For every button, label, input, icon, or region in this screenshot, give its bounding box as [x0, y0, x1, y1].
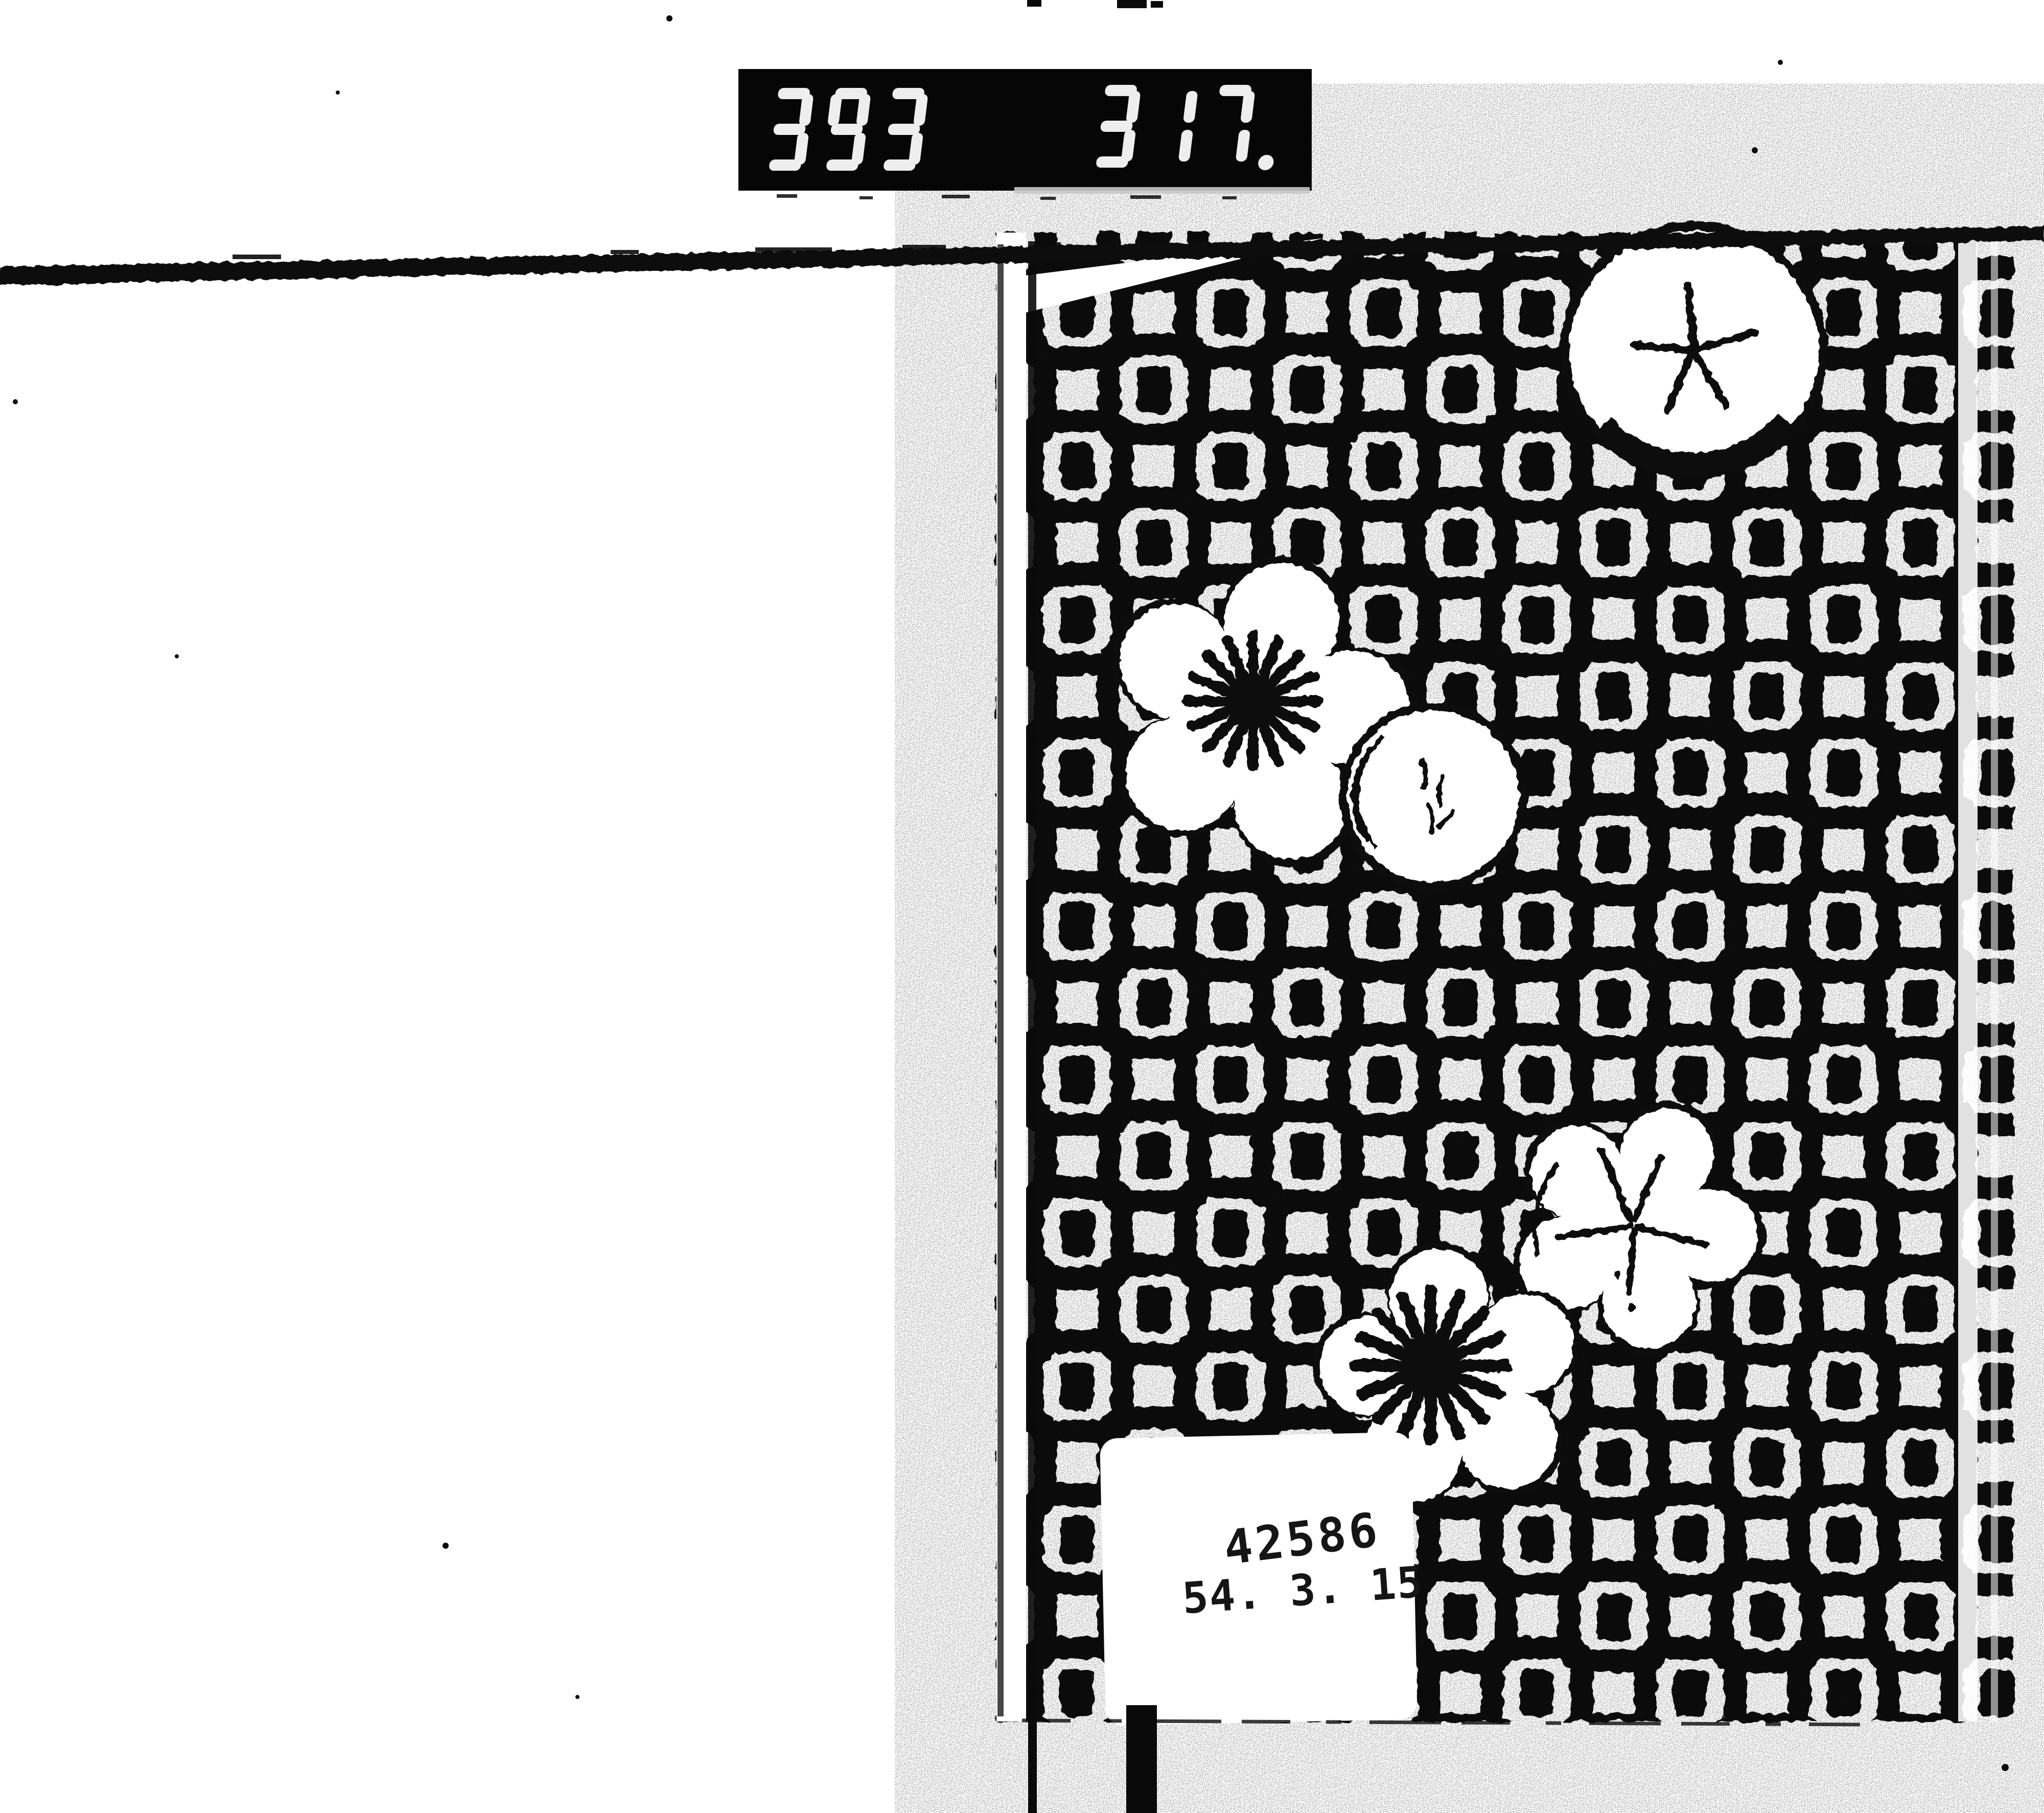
thread-line	[1028, 241, 1036, 1717]
swatch-left-edge-line	[997, 244, 1004, 1716]
crease-streak	[1991, 233, 1998, 1722]
crease-streak	[1958, 233, 1978, 1722]
ray-center-icon	[1188, 636, 1318, 767]
plum-blossom-star-top-icon	[1560, 221, 1828, 479]
hanging-tape-thin	[1028, 1717, 1037, 1813]
film-counter-plate	[738, 69, 1312, 200]
scanned-textile-card: 42586 54. 3. 15	[0, 0, 2044, 1813]
ray-center-icon	[1356, 1291, 1506, 1441]
fabric-swatch	[996, 221, 2013, 1813]
plate-bottom-glare	[1014, 187, 1310, 194]
round-bud-icon	[1339, 702, 1527, 890]
